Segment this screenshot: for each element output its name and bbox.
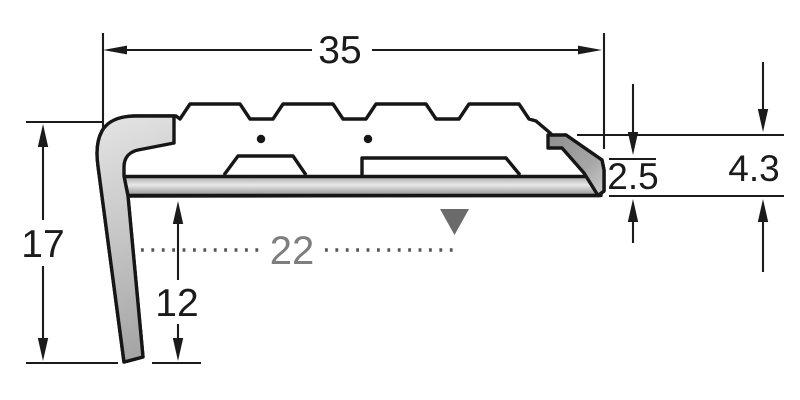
arrowhead-up xyxy=(173,201,183,224)
label-back-height: 4.3 xyxy=(728,148,779,189)
label-overall-width: 35 xyxy=(318,29,361,72)
arrowhead-down xyxy=(628,132,638,155)
label-edge-thickness: 2.5 xyxy=(607,156,658,197)
arrowhead-right xyxy=(578,46,602,55)
arrowhead-down xyxy=(38,338,48,361)
label-leg-depth: 12 xyxy=(155,282,198,325)
technical-drawing-canvas: 35 17 12 22 2.5 4.3 xyxy=(0,0,800,400)
stair-nosing-diagram: 35 17 12 22 2.5 4.3 xyxy=(0,0,800,400)
label-front-height: 17 xyxy=(21,223,64,266)
arrowhead-down xyxy=(758,109,768,132)
arrowhead-left xyxy=(103,46,127,55)
rivet-dot-left xyxy=(257,135,265,143)
base-strip xyxy=(124,177,601,196)
arrowhead-up xyxy=(758,199,768,222)
arrowhead-up xyxy=(628,199,638,222)
rivet-dot-right xyxy=(364,135,372,143)
tread-marker-triangle xyxy=(440,209,469,235)
arrowhead-up xyxy=(38,124,48,147)
label-tread-reference: 22 xyxy=(270,229,315,273)
arrowhead-down xyxy=(173,338,183,361)
